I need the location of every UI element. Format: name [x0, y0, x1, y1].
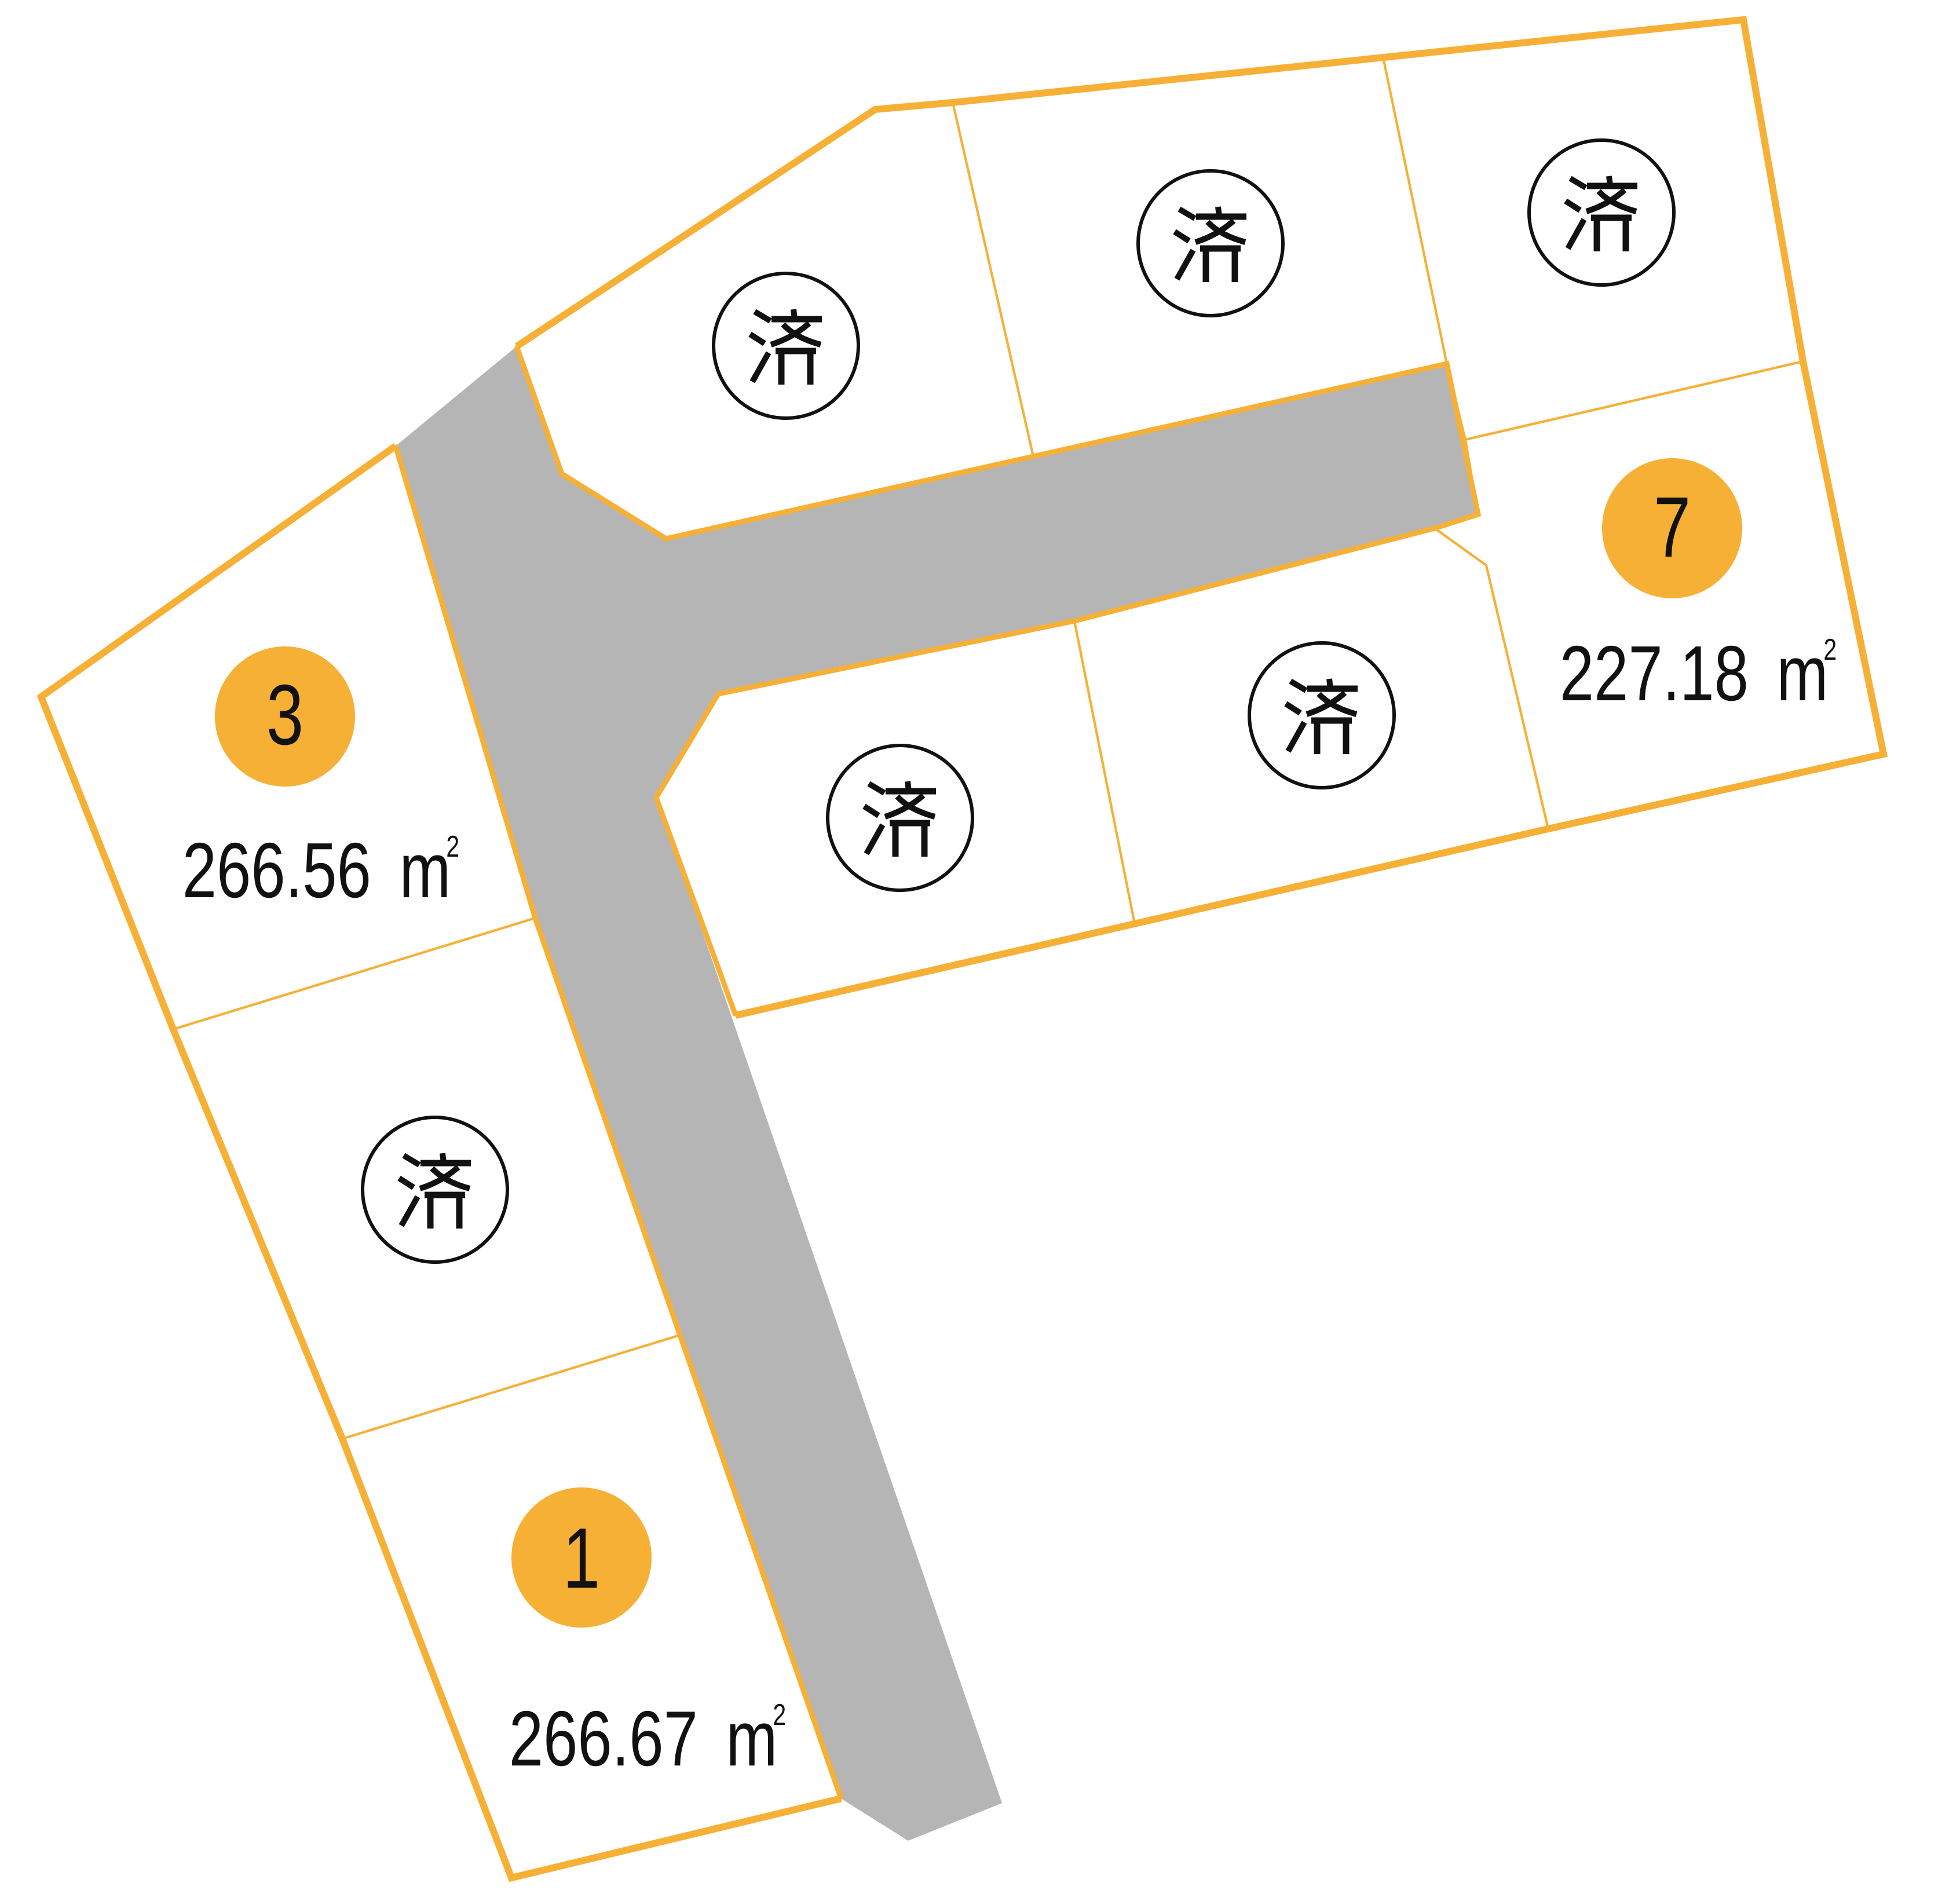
svg-text:1: 1	[563, 1511, 600, 1606]
svg-text:266.67 m2: 266.67 m2	[509, 1695, 787, 1782]
svg-text:227.18 m2: 227.18 m2	[1560, 630, 1837, 717]
svg-text:3: 3	[266, 667, 303, 763]
svg-text:7: 7	[1654, 480, 1691, 575]
svg-text:266.56 m2: 266.56 m2	[182, 827, 460, 914]
